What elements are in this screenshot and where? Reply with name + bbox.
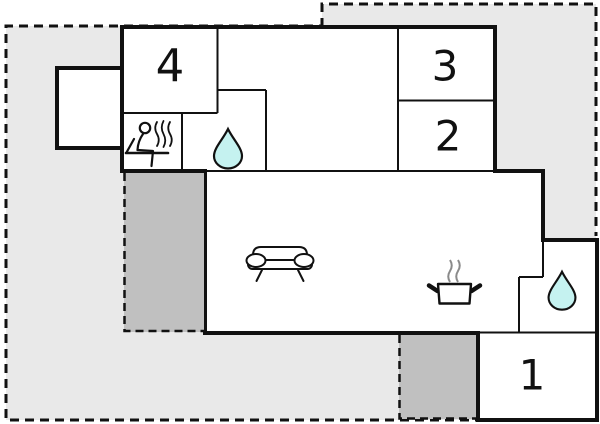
annex-room bbox=[57, 68, 123, 148]
floor-plan: 4 3 2 1 bbox=[0, 0, 600, 424]
floor-plan-drawing bbox=[0, 0, 600, 424]
room-label-2: 2 bbox=[435, 115, 462, 157]
room-label-1: 1 bbox=[519, 354, 546, 396]
covered-terrace-left bbox=[124, 173, 204, 332]
covered-terrace-bottom bbox=[399, 335, 476, 419]
covered-terrace-left-area bbox=[124, 173, 204, 332]
room-label-4: 4 bbox=[156, 44, 185, 89]
covered-terrace-bottom-area bbox=[399, 335, 476, 419]
room-label-3: 3 bbox=[432, 45, 459, 87]
